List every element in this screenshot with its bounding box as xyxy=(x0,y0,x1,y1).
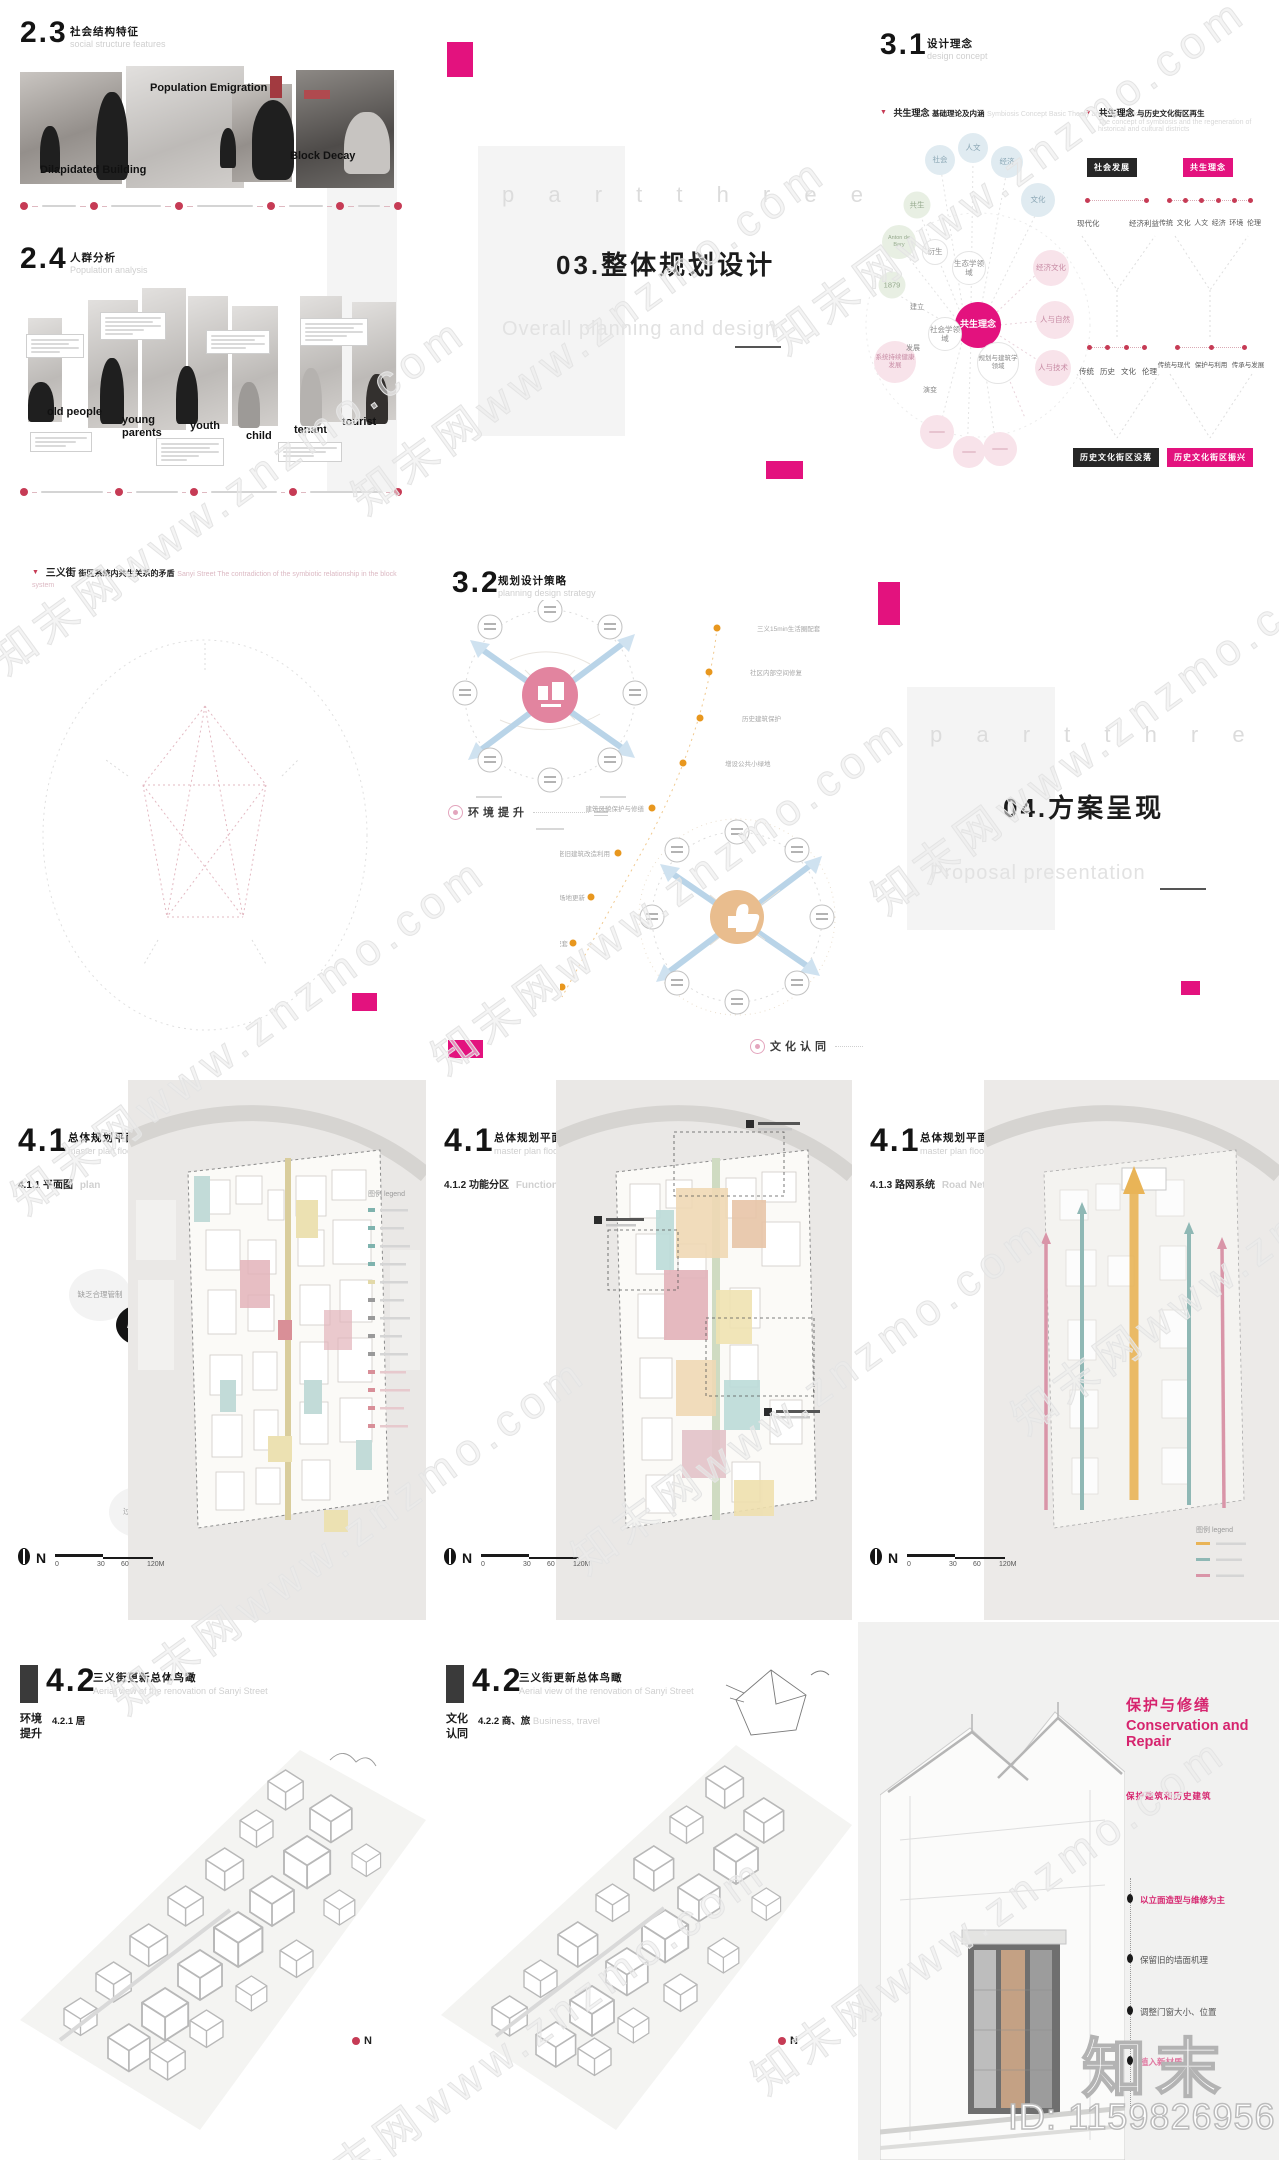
subheading-2-sub: 与历史文化街区再生 xyxy=(1137,109,1205,118)
slide-design-concept: 3.1 设计理念 design concept ▼ 共生理念 基础理论及内涵 S… xyxy=(845,0,1279,540)
section-subtitle-2-3: social structure features xyxy=(70,39,166,49)
compass-n: N xyxy=(462,1551,472,1565)
center-bubble: 共生理念 xyxy=(955,302,1001,348)
bullet-dot xyxy=(1127,1894,1133,1903)
bubble-unlabeled xyxy=(983,432,1017,466)
photo-label-decay: Block Decay xyxy=(290,150,355,162)
bubble-1879: 1879 xyxy=(879,272,906,299)
accent-block xyxy=(448,1040,483,1058)
divider-title: 04.方案呈现 xyxy=(1003,788,1164,825)
accent-block xyxy=(352,993,377,1011)
aerial-view-drawing xyxy=(426,1740,852,2140)
flow2-connectors xyxy=(1130,232,1279,446)
compass-n: N xyxy=(790,2035,798,2047)
scale-60: 60 xyxy=(973,1561,981,1568)
word-evolve: 演变 xyxy=(923,385,937,395)
child-silhouette xyxy=(238,382,260,428)
section-title-4-2: 三义街更新总体鸟瞰 xyxy=(519,1670,623,1685)
bubble-society: 社会 xyxy=(925,145,955,175)
flow2-dot-row-2 xyxy=(1175,344,1247,350)
curve-label: 社区内部空间修复 xyxy=(750,668,803,677)
young-parents-silhouette xyxy=(100,358,124,424)
divider-title: 03.整体规划设计 xyxy=(556,245,775,282)
flow2-top-box: 共生理念 xyxy=(1183,158,1233,177)
person-label: young parents xyxy=(122,414,174,440)
bullet-dot xyxy=(1127,1954,1133,1963)
legend-title: 图例 legend xyxy=(368,1189,405,1198)
subheading-2-en: The concept of symbiosis and the regener… xyxy=(1098,119,1275,133)
subsection-label: 4.1.3 路网系统 xyxy=(870,1180,935,1191)
flow-label: 经济 xyxy=(1212,218,1226,228)
portfolio-sheet: 2.3 社会结构特征 social structure features Pop… xyxy=(0,0,1279,2160)
curve-label: 完善基础设施配套 xyxy=(560,939,569,948)
section-number-3-1: 3.1 xyxy=(880,30,928,60)
flow1-label-row-1: 现代化 经济利益 xyxy=(1077,218,1159,229)
scale-30: 30 xyxy=(523,1561,531,1568)
red-sign xyxy=(270,76,282,98)
scale-30: 30 xyxy=(949,1561,957,1568)
divider-subtitle: Proposal presentation xyxy=(930,862,1146,885)
person-silhouette xyxy=(220,128,236,168)
divider-part-three-04: p a r t t h r e e 04.方案呈现 Proposal prese… xyxy=(845,540,1279,1080)
scale-60: 60 xyxy=(121,1561,129,1568)
bubble-economy: 经济 xyxy=(991,146,1023,178)
photo-label-emigration: Population Emigration xyxy=(150,82,267,94)
north-dot-icon xyxy=(778,2037,786,2045)
dark-block xyxy=(446,1665,464,1703)
subheading-2: ▼ 共生理念 与历史文化街区再生 The concept of symbiosi… xyxy=(1085,106,1275,133)
flow2-label-row-2: 传统与现代 保护与利用 传承与发展 xyxy=(1157,362,1265,371)
flow-label: 传统 xyxy=(1159,218,1173,228)
bubble-anton-de-bary: Anton de Bary xyxy=(882,225,916,259)
road-network-map: 图例 legend xyxy=(984,1080,1279,1620)
youth-silhouette xyxy=(176,366,198,424)
speech-bubble xyxy=(278,442,342,462)
flow-label: 传统与现代 xyxy=(1157,362,1191,371)
person-label: youth xyxy=(190,420,220,432)
north-compass: N xyxy=(870,1548,898,1565)
tag-environment-label: 环境提升 xyxy=(468,804,528,820)
flow-label: 文化 xyxy=(1177,218,1191,228)
section-subtitle-3-1: design concept xyxy=(927,51,988,61)
pentagon-title: 三义街 xyxy=(46,568,76,579)
subsection-4-2-2: 4.2.2 商、旅 Business, travel xyxy=(478,1713,600,1727)
section-number-4-1: 4.1 xyxy=(444,1124,494,1156)
divider-line xyxy=(735,346,781,348)
legend-title: 图例 legend xyxy=(1196,1525,1233,1534)
subsection-label-en: plan xyxy=(80,1180,101,1191)
north-indicator: N xyxy=(352,2035,372,2047)
culture-strategy-wheel xyxy=(630,780,845,1040)
subsection-4-2-1: 4.2.1 居 xyxy=(52,1713,85,1727)
scale-60: 60 xyxy=(547,1561,555,1568)
north-compass: N xyxy=(444,1548,472,1565)
flow-label: 现代化 xyxy=(1077,218,1100,229)
flow1-bottom-box: 历史文化街区没落 xyxy=(1073,448,1159,467)
compass-n: N xyxy=(364,2035,372,2047)
dark-block xyxy=(20,1665,38,1703)
triangle-icon: ▼ xyxy=(1085,109,1092,116)
person-label: tenant xyxy=(294,424,327,436)
curve-label: 老旧建筑改造利用 xyxy=(560,849,610,858)
section-title-2-4: 人群分析 xyxy=(70,250,116,265)
flow-label: 历史 xyxy=(1100,366,1115,377)
section-title-3-2: 规划设计策略 xyxy=(498,573,567,588)
curve-label: 历史建筑保护 xyxy=(742,714,781,723)
flow1-dot-row-2 xyxy=(1087,344,1147,350)
flow-label: 文化 xyxy=(1121,366,1136,377)
flow2-label-row-1: 传统 文化 人文 经济 环境 伦理 xyxy=(1159,218,1261,228)
scale-0: 0 xyxy=(481,1561,485,1568)
scale-120: 120M xyxy=(999,1561,1017,1568)
scale-120: 120M xyxy=(573,1561,591,1568)
node-planning-architecture-field: 规划与建筑学领域 xyxy=(977,342,1019,384)
repair-title-en: Conservation and Repair xyxy=(1126,1718,1276,1750)
speech-bubble xyxy=(30,432,92,452)
subheading-2-title: 共生理念 xyxy=(1098,108,1134,118)
section-number-2-4: 2.4 xyxy=(20,244,68,274)
aerial-view-drawing xyxy=(0,1740,426,2140)
section-number-4-2: 4.2 xyxy=(472,1664,522,1696)
master-plan-map: 图例 legend xyxy=(128,1080,426,1620)
repair-bullet: 调整门窗大小、位置 xyxy=(1140,2006,1217,2018)
slide-master-plan: 4.1 总体规划平面图 master plan floor plan 4.1.1… xyxy=(0,1080,426,1620)
scale-30: 30 xyxy=(97,1561,105,1568)
accent-block xyxy=(878,582,900,625)
slide-contradiction-diagram: ▼ 三义街 街区系统内共生关系的矛盾 Sanyi Street The cont… xyxy=(0,540,420,1080)
section-title-3-1: 设计理念 xyxy=(927,36,973,51)
section-title-2-3: 社会结构特征 xyxy=(70,24,139,39)
divider-subtitle: Overall planning and design xyxy=(502,318,777,341)
subsection-label: 4.2.2 商、旅 xyxy=(478,1716,530,1727)
slide-aerial-culture: 4.2 三义街更新总体鸟瞰 Aerial view of the renovat… xyxy=(426,1620,852,2160)
flow-label: 保护与利用 xyxy=(1194,362,1228,371)
photo-label-dilapidated: Dilapidated Building xyxy=(40,164,146,176)
slide-road-network: 4.1 总体规划平面图 master plan floor plan 4.1.3… xyxy=(852,1080,1279,1620)
node-ecology-field: 生态学领域 xyxy=(952,251,986,285)
subheading-1-sub: 基础理论及内涵 xyxy=(932,109,985,118)
slide-social-structure: 2.3 社会结构特征 social structure features Pop… xyxy=(0,0,420,540)
flow-label: 传统 xyxy=(1079,366,1094,377)
scale-0: 0 xyxy=(907,1561,911,1568)
flow1-label-row-2: 传统 历史 文化 伦理 xyxy=(1079,366,1157,377)
speech-bubble xyxy=(156,438,224,466)
flower-icon xyxy=(448,805,463,820)
red-sign xyxy=(304,90,330,99)
subsection-label-en: Business, travel xyxy=(533,1716,600,1727)
person-label: old people xyxy=(47,406,102,418)
side-tag-culture: 文化认同 xyxy=(446,1712,472,1742)
functional-division-map xyxy=(556,1080,852,1620)
repair-subtitle: 保护建筑和历史建筑 xyxy=(1126,1790,1212,1802)
watermark-id: ID: 1159826956 xyxy=(1008,2096,1276,2138)
section-number-4-2: 4.2 xyxy=(46,1664,96,1696)
tenant-silhouette xyxy=(300,368,322,426)
flow-label: 伦理 xyxy=(1247,218,1261,228)
subheading-1-title: 共生理念 xyxy=(893,108,929,118)
person-label: child xyxy=(246,430,272,442)
north-indicator: N xyxy=(778,2035,798,2047)
section-subtitle-4-2: Aerial view of the renovation of Sanyi S… xyxy=(519,1686,694,1696)
section-number-3-2: 3.2 xyxy=(452,568,500,598)
triangle-icon: ▼ xyxy=(880,109,887,116)
compass-icon xyxy=(18,1548,30,1565)
section-subtitle-2-4: Population analysis xyxy=(70,265,148,275)
repair-bullet: 保留旧的墙面机理 xyxy=(1140,1954,1208,1966)
subsection-label: 4.1.1 平面图 xyxy=(18,1180,73,1191)
person-label: tourist xyxy=(342,416,376,428)
slide-planning-strategy: 3.2 规划设计策略 planning design strategy xyxy=(420,540,845,1080)
north-compass: N xyxy=(18,1548,46,1565)
lantern-icon xyxy=(750,1039,765,1054)
flow-label: 环境 xyxy=(1229,218,1243,228)
subsection-4-1-1: 4.1.1 平面图 plan xyxy=(18,1176,100,1191)
flow-label: 人文 xyxy=(1194,218,1208,228)
bubble-culture: 文化 xyxy=(1021,183,1055,217)
subsection-label: 4.1.2 功能分区 xyxy=(444,1180,509,1191)
section-number-2-3: 2.3 xyxy=(20,18,68,48)
divider-line xyxy=(1160,888,1206,890)
divider-part-three-03: p a r t t h r e e 03.整体规划设计 Overall plan… xyxy=(420,0,845,540)
accent-block xyxy=(447,42,473,77)
speech-bubble xyxy=(206,330,270,354)
compass-n: N xyxy=(888,1551,898,1565)
part-label: p a r t t h r e e xyxy=(502,182,877,208)
timeline-2-4 xyxy=(20,488,402,496)
speech-bubble xyxy=(300,318,368,346)
bubble-unlabeled xyxy=(920,415,954,449)
scale-0: 0 xyxy=(55,1561,59,1568)
pentagon-heading: ▼ 三义街 街区系统内共生关系的矛盾 Sanyi Street The cont… xyxy=(32,564,420,590)
flow1-dot-row-1 xyxy=(1085,197,1149,203)
section-subtitle-3-2: planning design strategy xyxy=(498,588,596,598)
section-number-4-1: 4.1 xyxy=(18,1124,68,1156)
compass-icon xyxy=(444,1548,456,1565)
person-silhouette xyxy=(252,100,294,180)
bubble-symbiosis: 共生 xyxy=(904,192,931,219)
north-dot-icon xyxy=(352,2037,360,2045)
flow-label: 经济利益 xyxy=(1129,218,1159,229)
timeline-2-3 xyxy=(20,202,402,210)
flow-label: 伦理 xyxy=(1142,366,1157,377)
bullet-dot xyxy=(1127,2006,1133,2015)
bubble-unlabeled xyxy=(953,436,985,468)
flow2-dot-row-1 xyxy=(1167,197,1253,203)
repair-bullet: 以立面造型与维修为主 xyxy=(1140,1894,1225,1906)
word-develop: 发展 xyxy=(906,343,920,353)
person-silhouette xyxy=(344,112,390,174)
section-title-4-2: 三义街更新总体鸟瞰 xyxy=(93,1670,197,1685)
curve-label: 社区活动场地更新 xyxy=(560,893,586,902)
node-sociology-field: 社会学领域 xyxy=(928,317,962,351)
slide-aerial-environment: 4.2 三义街更新总体鸟瞰 Aerial view of the renovat… xyxy=(0,1620,426,2160)
flow2-bottom-box: 历史文化街区振兴 xyxy=(1167,448,1253,467)
scale-120: 120M xyxy=(147,1561,165,1568)
word-establish: 建立 xyxy=(910,302,924,312)
accent-block xyxy=(766,461,803,479)
pentagon-title-sub: 街区系统内共生关系的矛盾 xyxy=(79,569,175,578)
flow1-top-box: 社会发展 xyxy=(1087,158,1137,177)
repair-title: 保护与修缮 xyxy=(1126,1694,1211,1715)
speech-bubble xyxy=(100,312,166,340)
section-number-4-1: 4.1 xyxy=(870,1124,920,1156)
tag-culture-label: 文化认同 xyxy=(770,1038,830,1054)
accent-block xyxy=(1181,981,1200,995)
part-label: p a r t t h r e e xyxy=(930,722,1279,748)
curve-label: 三义15min生活圈配套 xyxy=(757,624,821,633)
curve-label: 增设公共小绿地 xyxy=(725,759,771,768)
bubble-humanities: 人文 xyxy=(958,133,988,163)
section-subtitle-4-2: Aerial view of the renovation of Sanyi S… xyxy=(93,1686,268,1696)
speech-bubble xyxy=(26,334,84,358)
node-derive: 衍生 xyxy=(922,239,948,265)
flow-label: 传承与发展 xyxy=(1231,362,1265,371)
slide-functional-division: 4.1 总体规划平面图 master plan floor plan 4.1.2… xyxy=(426,1080,852,1620)
side-tag-environment: 环境提升 xyxy=(20,1712,46,1742)
triangle-icon: ▼ xyxy=(32,569,39,576)
compass-icon xyxy=(870,1548,882,1565)
compass-n: N xyxy=(36,1551,46,1565)
